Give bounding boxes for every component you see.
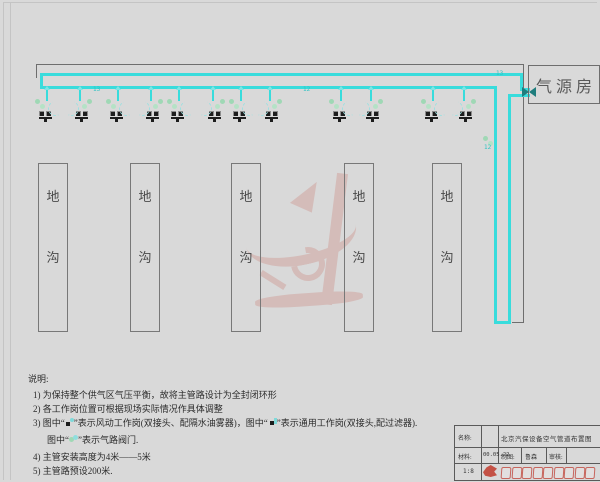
- note-line: 1) 为保持整个供气区气压平衡，故将主管路设计为全封闭环形: [33, 390, 458, 400]
- trench-label: 沟: [440, 247, 453, 266]
- flow-arrow-icon: [338, 86, 344, 90]
- dragon-watermark-stroke: [260, 270, 287, 290]
- outlet-socket: [83, 111, 88, 116]
- company-name-glyph: [532, 467, 543, 479]
- trench-box: 地沟: [38, 163, 68, 332]
- connector-stem: [176, 119, 179, 122]
- note-line: 2) 各工作岗位置可根据现场实际情况作具体调整: [33, 404, 458, 414]
- air-source-room-box: 气源房: [528, 65, 600, 104]
- trench-label: 地: [46, 186, 59, 205]
- company-name-glyph: [553, 467, 564, 479]
- flow-arrow-icon: [267, 86, 273, 90]
- notes-heading: 说明:: [28, 372, 458, 385]
- bowtie-valve-icon: [522, 87, 529, 97]
- company-name-glyph: [585, 467, 596, 479]
- air-source-room-label: 气源房: [532, 73, 596, 97]
- valve-icon: [234, 104, 239, 109]
- trench-label: 沟: [352, 247, 365, 266]
- title-block-line: [481, 426, 482, 480]
- workstation-symbol: [66, 88, 94, 128]
- pipe-dimension-label: 12: [303, 86, 310, 93]
- workstation-symbol: [357, 88, 385, 128]
- flow-arrow-icon: [148, 86, 154, 90]
- trench-label: 地: [239, 186, 252, 205]
- note-text: ”表示通用工作岗(双接头,配过滤器).: [277, 418, 418, 428]
- trench-box: 地沟: [231, 163, 261, 332]
- workstation-symbol: [33, 88, 61, 128]
- connector-stem: [151, 119, 154, 122]
- title-block-line: [566, 447, 567, 463]
- outlet-socket: [273, 111, 278, 116]
- trench-box: 地沟: [130, 163, 160, 332]
- company-name-glyph: [564, 467, 575, 479]
- drawing-sheet: 气源房 地沟地沟地沟地沟地沟 13121312 说明: 1) 为保持整个供气区气…: [0, 0, 600, 482]
- sheet-border-line: [3, 2, 597, 3]
- flow-arrow-icon: [368, 86, 374, 90]
- title-block-line: [546, 447, 547, 463]
- trench-label: 地: [440, 186, 453, 205]
- valve-icon: [378, 99, 383, 104]
- trench-label: 沟: [46, 247, 59, 266]
- note-line: 4) 主管安装高度为4米——5米: [33, 452, 458, 462]
- note-text: 图中“: [47, 435, 69, 445]
- valve-dot: [483, 136, 488, 141]
- workstation-symbol: [227, 88, 255, 128]
- title-block-line: [455, 447, 600, 448]
- draft-name: 鲁森: [525, 452, 537, 461]
- trench-label: 沟: [138, 247, 151, 266]
- workstation-symbol: [256, 88, 284, 128]
- trench-label: 地: [352, 186, 365, 205]
- flow-arrow-icon: [115, 86, 121, 90]
- workstation-symbol: [199, 88, 227, 128]
- notes-section: 说明: 1) 为保持整个供气区气压平衡，故将主管路设计为全封闭环形2) 各工作岗…: [28, 372, 458, 480]
- building-wall-line: [523, 64, 524, 322]
- valve-icon: [215, 104, 220, 109]
- outlet-socket: [110, 111, 115, 116]
- workstation-symbol: [450, 88, 478, 128]
- title-block: 名称: 北京汽保设备空气管道布置图 材料: 00.05.22 制图: 鲁森 审核…: [454, 425, 600, 481]
- company-name-glyph: [543, 467, 554, 479]
- valve-icon: [373, 104, 378, 109]
- main-pipe-segment: [494, 86, 497, 324]
- outlet-socket: [333, 111, 338, 116]
- valve-icon: [35, 99, 40, 104]
- sheet-border-line: [3, 2, 4, 480]
- company-name-glyph: [522, 467, 533, 479]
- pipe-dimension-label: 13: [496, 70, 503, 77]
- flow-arrow-icon: [44, 86, 50, 90]
- workstation-symbol: [419, 88, 447, 128]
- building-wall-line: [36, 64, 37, 78]
- outlet-socket: [39, 111, 44, 116]
- outlet-socket: [216, 111, 221, 116]
- valve-icon: [421, 99, 426, 104]
- flow-arrow-icon: [238, 86, 244, 90]
- valve-icon: [82, 104, 87, 109]
- note-text: ”表示气路阀门.: [78, 435, 138, 445]
- connector-stem: [430, 119, 433, 122]
- note-text: ”表示风动工作岗(双接头、配隔水油雾器)，图中“: [74, 418, 268, 428]
- outlet-socket: [467, 111, 472, 116]
- outlet-socket: [374, 111, 379, 116]
- connector-stem: [238, 119, 241, 122]
- company-dragon-logo-icon: [483, 465, 497, 477]
- flow-arrow-icon: [176, 86, 182, 90]
- valve-icon: [87, 99, 92, 104]
- valve-icon: [229, 99, 234, 104]
- building-wall-line: [512, 322, 524, 323]
- pipe-dimension-label: 12: [484, 144, 491, 151]
- bowtie-valve-icon: [529, 87, 536, 97]
- workstation-symbol: [327, 88, 355, 128]
- review-label: 审核:: [549, 452, 563, 461]
- valve-icon: [106, 99, 111, 104]
- valve-icon: [426, 104, 431, 109]
- valve-icon: [334, 104, 339, 109]
- connector-stem: [213, 119, 216, 122]
- drawing-title: 北京汽保设备空气管道布置图: [501, 433, 592, 443]
- valve-icon: [466, 104, 471, 109]
- valve-icon: [40, 104, 45, 109]
- note-line: 5) 主管路预设200米.: [33, 466, 458, 476]
- company-name-glyph: [574, 467, 585, 479]
- note-line: 图中“”表示气路阀门.: [47, 435, 458, 445]
- outlet-socket: [171, 111, 176, 116]
- valve-icon: [277, 99, 282, 104]
- flow-arrow-icon: [430, 86, 436, 90]
- general-station-icon: [268, 418, 277, 427]
- building-wall-line: [36, 64, 523, 65]
- company-name-glyph: [501, 467, 512, 479]
- valve-icon: [272, 104, 277, 109]
- workstation-symbol: [137, 88, 165, 128]
- scale-value: 1:8: [463, 468, 474, 475]
- connector-stem: [371, 119, 374, 122]
- valve-icon: [220, 99, 225, 104]
- outlet-socket: [425, 111, 430, 116]
- outlet-socket: [233, 111, 238, 116]
- sheet-border-line: [10, 2, 11, 480]
- valve-icon: [471, 99, 476, 104]
- workstation-symbol: [104, 88, 132, 128]
- main-pipe-segment: [508, 95, 511, 324]
- connector-stem: [270, 119, 273, 122]
- flow-arrow-icon: [77, 86, 83, 90]
- flow-arrow-icon: [461, 86, 467, 90]
- connector-stem: [115, 119, 118, 122]
- notes-list: 1) 为保持整个供气区气压平衡，故将主管路设计为全封闭环形2) 各工作岗位置可根…: [28, 390, 458, 476]
- wind-station-icon: [65, 418, 74, 427]
- pipe-dimension-label: 13: [93, 86, 100, 93]
- valve-icon: [172, 104, 177, 109]
- main-pipe-segment: [40, 73, 523, 76]
- connector-stem: [44, 119, 47, 122]
- valve-icon: [167, 99, 172, 104]
- outlet-socket: [154, 111, 159, 116]
- trench-box: 地沟: [344, 163, 374, 332]
- valve-icon: [153, 104, 158, 109]
- workstation-symbol: [165, 88, 193, 128]
- trench-label: 地: [138, 186, 151, 205]
- titleblock-name-label: 名称:: [458, 433, 472, 442]
- valve-icon: [111, 104, 116, 109]
- valve-icon: [69, 435, 78, 444]
- material-label: 材料:: [458, 452, 472, 461]
- connector-stem: [338, 119, 341, 122]
- trench-box: 地沟: [432, 163, 462, 332]
- note-line: 3) 图中“”表示风动工作岗(双接头、配隔水油雾器)，图中“”表示通用工作岗(双…: [33, 418, 458, 428]
- flow-arrow-icon: [210, 86, 216, 90]
- title-block-line: [455, 463, 600, 464]
- valve-icon: [158, 99, 163, 104]
- trench-label: 沟: [239, 247, 252, 266]
- connector-stem: [464, 119, 467, 122]
- connector-stem: [80, 119, 83, 122]
- company-name-glyph: [511, 467, 522, 479]
- title-block-line: [521, 447, 522, 463]
- note-text: 3) 图中“: [33, 418, 65, 428]
- valve-icon: [329, 99, 334, 104]
- draft-label: 制图:: [501, 452, 515, 461]
